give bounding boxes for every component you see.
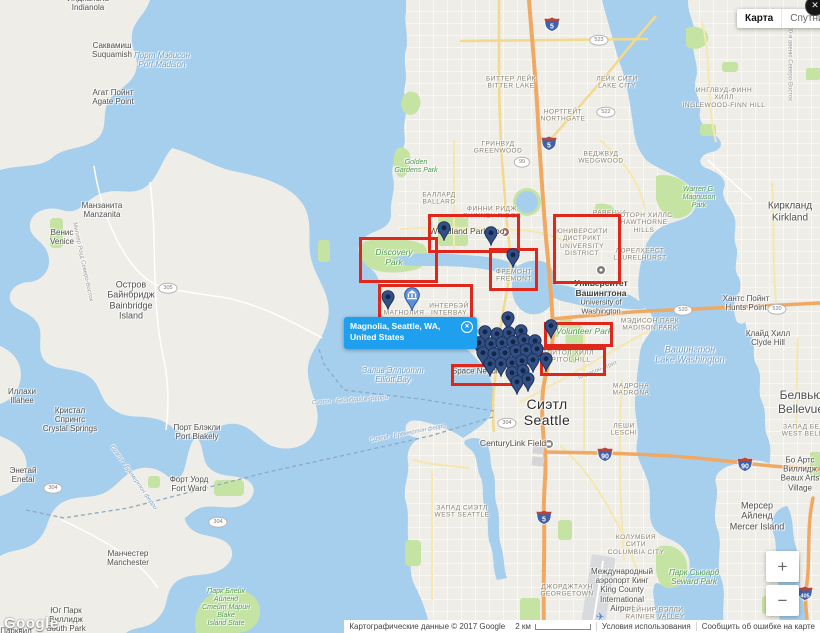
map-label-town: СаквамишSuquamish — [92, 41, 132, 59]
interstate-shield-icon: 5 — [536, 511, 552, 530]
map-marker-pin[interactable] — [437, 221, 451, 246]
map-label-district: ИНГЛВУД-ФИННХИЛЛINGLEWOOD-FINN HILL — [683, 87, 766, 109]
map-label-street: Мэдисон-стрит — [577, 360, 618, 382]
map-label-district: ФИННИ РИДЖPHINNEY RIDGE — [463, 206, 521, 221]
map-label-park: Warren G.MagnusonPark — [683, 186, 716, 210]
scale-control: 2 км — [510, 622, 596, 631]
map-label-district: ДЖОРДЖТАУНGEORGETOWN — [540, 584, 593, 599]
map-label-water: Залив ЭллиоттElliott Bay — [362, 366, 423, 384]
attribution-bar: Картографические данные © 2017 Google 2 … — [344, 620, 820, 633]
map-label-city: СиэтлSeattle — [524, 396, 570, 428]
map-label-ferry: Сиэтл - Бремертон ферри — [369, 423, 446, 444]
map-label-town: КристалСпрингсCrystal Springs — [43, 406, 97, 434]
map-label-district: МАДРОНАMADRONA — [613, 383, 650, 398]
copyright-text: Картографические данные © 2017 Google — [344, 622, 510, 631]
map-label-district: ВЕДЖВУДWEDGWOOD — [578, 151, 623, 166]
route-shield-icon: 522 — [596, 107, 615, 118]
map-label-town: Форт УордFort Ward — [170, 475, 209, 493]
info-window-close-icon[interactable]: ✕ — [461, 321, 473, 333]
map-label-district: ЗАПАД СИЭТЛWEST SEATTLE — [435, 505, 490, 520]
map-label-park: Volunteer Park — [556, 327, 612, 337]
map-label-town: ИндианолаIndianola — [67, 0, 109, 12]
map-label-town: Хантс ПойнтHunts Point — [723, 294, 770, 312]
map-label-water: ВашингтонLake Washington — [655, 345, 724, 366]
svg-text:5: 5 — [542, 517, 546, 524]
zoom-control: + − — [766, 551, 799, 619]
map-label-district: ИНТЕРБЭЙINTERBAY — [429, 303, 469, 318]
map-label-district: МЭДИСОН ПАРКMADISON PARK — [621, 318, 679, 333]
map-label-district: ЛОРЕЛХЕРСТLAURELHURST — [613, 248, 666, 263]
highlight-box — [359, 237, 438, 283]
google-logo: Google — [4, 615, 59, 632]
route-shield-icon: 99 — [514, 157, 530, 168]
map-label-town: Порт БлэклиPort Blakely — [174, 423, 221, 441]
map-marker-pin[interactable] — [506, 248, 520, 273]
map-label-district: БАЛЛАРДBALLARD — [422, 192, 455, 207]
svg-text:5: 5 — [550, 24, 554, 31]
map-label-town: Агат ПойнтAgate Point — [92, 88, 133, 106]
map-label-poiStrong: УниверситетВашингтона — [574, 279, 627, 299]
map-label-park: DiscoveryPark — [375, 248, 412, 268]
interstate-shield-icon: 5 — [544, 18, 560, 37]
map-label-ferry: Сиэтл - Бремертон ферри — [108, 444, 158, 511]
map-marker-pin[interactable] — [544, 319, 558, 344]
interstate-shield-icon: 90 — [597, 448, 613, 467]
map-label-poi: University ofWashington — [580, 298, 621, 315]
map-label-district: ХОТОРН ХИЛЛСHAWTHORNEHILLS — [616, 212, 673, 234]
route-shield-icon: 305 — [158, 283, 177, 294]
info-window: Magnolia, Seattle, WA, United States ✕ — [344, 317, 477, 349]
map-label-ferry: Сиэтл - Бейнбридж-ферри — [312, 395, 388, 407]
map-label-poi: CenturyLink Field — [480, 439, 546, 449]
svg-text:405: 405 — [800, 594, 809, 600]
map-label-district: КОЛУМБИЯСИТИCOLUMBIA CITY — [608, 534, 665, 556]
map-label-street: Миллер Роуд Северо-Восток — [70, 222, 93, 302]
map-label-town: Клайд ХиллClyde Hill — [746, 329, 790, 347]
highlight-box — [553, 214, 621, 284]
scale-label: 2 км — [515, 622, 531, 631]
map-marker-pin[interactable] — [521, 372, 535, 397]
map-label-district: БИТТЕР ЛЕЙКBITTER LAKE — [486, 76, 536, 91]
route-shield-icon: 520 — [673, 305, 692, 316]
map-label-town: МерсерАйлендMercer Island — [730, 500, 785, 531]
terms-link[interactable]: Условия использования — [596, 622, 696, 631]
interstate-shield-icon: 5 — [541, 137, 557, 156]
map-label-town: КиркландKirkland — [768, 201, 812, 224]
map-label-town: Международныйаэропорт КингKing CountyInt… — [591, 567, 653, 613]
map-marker-pin[interactable] — [539, 352, 553, 377]
map-label-town: ОстровБайнбриджBainbridgeIsland — [107, 279, 154, 320]
map-button[interactable]: Карта — [737, 9, 781, 28]
interstate-shield-icon: 405 — [797, 587, 813, 606]
map-label-town: ИллахиIllahee — [8, 387, 36, 405]
map-label-town: ЭнетайEnetai — [10, 466, 37, 484]
map-label-park: GoldenGardens Park — [394, 159, 437, 175]
svg-text:5: 5 — [547, 143, 551, 150]
route-shield-icon: 304 — [497, 418, 516, 429]
route-shield-icon: 304 — [208, 517, 227, 528]
map-label-district: ЮНИВЕРСИТИДИСТРИКТUNIVERSITYDISTRICT — [556, 228, 608, 258]
info-window-text: Magnolia, Seattle, WA, United States — [344, 317, 477, 347]
map-label-water: Порт МэдисонPort Madison — [134, 51, 190, 69]
zoom-in-button[interactable]: + — [766, 551, 799, 582]
map-marker-pin[interactable] — [381, 290, 395, 315]
svg-text:90: 90 — [601, 454, 609, 461]
map-label-district: РАВЕННА — [593, 209, 627, 216]
map-label-town: ВенисVenice — [50, 228, 74, 246]
map-label-town: Бо АртсВиллиджBeaux ArtsVillage — [781, 456, 820, 493]
route-shield-icon: 304 — [43, 483, 62, 494]
map-label-town: БелвьюBellevue — [778, 389, 820, 417]
route-shield-icon: 523 — [589, 35, 608, 46]
google-maps-window: ✈ ИндианолаIndianolaСаквамишSuquamishПор… — [0, 0, 820, 633]
map-label-district: ГРИНВУДGREENWOOD — [474, 141, 523, 156]
map-label-district: ЛЕШИLESCHI — [611, 423, 637, 438]
map-label-district: НОРТГЕЙТNORTHGATE — [541, 109, 586, 124]
report-error-link[interactable]: Сообщить об ошибке на карте — [696, 622, 820, 631]
interstate-shield-icon: 90 — [737, 458, 753, 477]
map-label-street: 100-я авеню Северо-Восток — [786, 23, 793, 101]
map-marker-pin[interactable] — [484, 226, 498, 251]
map-label-town: МанчестерManchester — [107, 549, 149, 567]
svg-text:90: 90 — [741, 464, 749, 471]
scale-bar — [535, 624, 591, 630]
map-label-district: ЛЕЙК СИТИLAKE CITY — [596, 76, 637, 91]
route-shield-icon: 520 — [767, 304, 786, 315]
zoom-out-button[interactable]: − — [766, 585, 799, 616]
museum-marker-pin[interactable] — [403, 287, 421, 316]
map-label-district: ЗАПАД БЕЛВЬЮWEST BELLEVUE — [782, 424, 820, 439]
map-label-park: Парк СьюардSeward Park — [669, 568, 719, 586]
map-label-town: МанзанитаManzanita — [82, 201, 123, 219]
map-label-park: Парк БлейкАйлендСтейт МаринBlakeIsland S… — [202, 588, 250, 628]
